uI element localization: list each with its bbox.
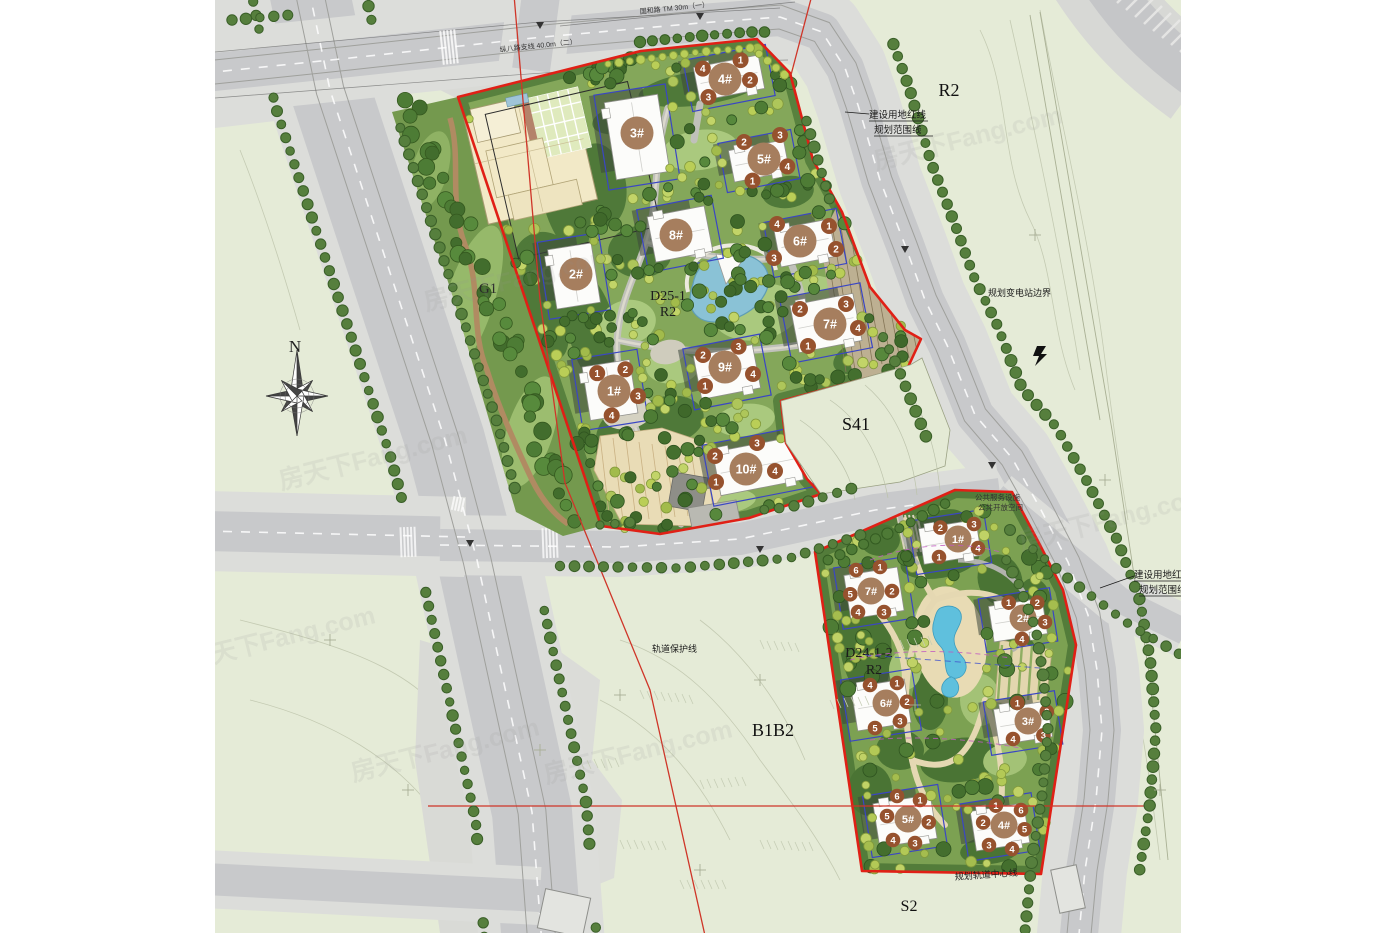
svg-text:2: 2 [904, 697, 909, 708]
svg-text:6#: 6# [880, 698, 892, 710]
svg-text:2: 2 [889, 586, 894, 597]
svg-text:规划范围线: 规划范围线 [874, 124, 922, 136]
svg-text:3: 3 [635, 392, 641, 403]
svg-text:6: 6 [853, 565, 858, 576]
svg-text:S41: S41 [842, 414, 870, 434]
svg-text:5#: 5# [902, 814, 914, 826]
svg-text:7#: 7# [865, 586, 877, 598]
svg-text:规划变电站边界: 规划变电站边界 [988, 287, 1051, 298]
svg-text:D25-1: D25-1 [650, 289, 686, 304]
svg-text:6: 6 [1018, 805, 1023, 816]
svg-text:3: 3 [971, 519, 976, 530]
svg-text:10#: 10# [736, 463, 757, 477]
svg-text:3: 3 [1042, 617, 1047, 628]
svg-text:4: 4 [855, 607, 861, 618]
svg-text:3: 3 [706, 93, 712, 104]
svg-text:4#: 4# [718, 73, 732, 87]
svg-text:规划范围线: 规划范围线 [1139, 584, 1187, 596]
svg-text:4: 4 [774, 220, 780, 231]
svg-text:2: 2 [981, 818, 986, 829]
svg-text:1: 1 [594, 369, 600, 380]
svg-text:4: 4 [750, 370, 756, 381]
svg-text:1: 1 [702, 382, 708, 393]
svg-text:5: 5 [884, 811, 890, 822]
svg-text:3: 3 [912, 838, 917, 849]
svg-text:4: 4 [609, 411, 615, 422]
svg-text:1: 1 [1015, 698, 1021, 709]
svg-text:7#: 7# [823, 318, 837, 332]
svg-text:5: 5 [872, 723, 878, 734]
svg-text:2: 2 [1035, 598, 1040, 609]
svg-text:N: N [289, 337, 301, 356]
svg-text:1: 1 [1006, 598, 1012, 609]
svg-text:3: 3 [754, 439, 760, 450]
svg-text:5: 5 [848, 590, 854, 601]
svg-text:4: 4 [785, 162, 791, 173]
svg-text:3: 3 [777, 131, 783, 142]
svg-text:8#: 8# [669, 229, 683, 243]
svg-text:1: 1 [805, 342, 811, 353]
svg-text:3: 3 [897, 716, 902, 727]
svg-text:3: 3 [771, 254, 777, 265]
svg-text:公共开放空间: 公共开放空间 [978, 502, 1023, 512]
svg-text:2: 2 [700, 351, 706, 362]
svg-text:建设用地红线: 建设用地红线 [869, 109, 927, 121]
svg-text:轨道保护线: 轨道保护线 [652, 643, 697, 654]
svg-text:2: 2 [797, 305, 803, 316]
svg-text:4#: 4# [998, 820, 1010, 832]
svg-text:2: 2 [623, 365, 629, 376]
svg-text:1#: 1# [607, 385, 621, 399]
svg-text:1: 1 [894, 678, 900, 689]
svg-text:3#: 3# [630, 127, 644, 141]
svg-text:6#: 6# [793, 235, 807, 249]
svg-text:4: 4 [1010, 734, 1016, 745]
svg-text:1: 1 [826, 222, 832, 233]
svg-text:3: 3 [881, 607, 886, 618]
svg-text:公共服务设施: 公共服务设施 [975, 492, 1020, 502]
svg-text:9#: 9# [718, 361, 732, 375]
svg-text:3: 3 [736, 342, 742, 353]
svg-text:2: 2 [938, 523, 943, 534]
svg-text:1: 1 [936, 552, 942, 563]
svg-text:4: 4 [1019, 634, 1025, 645]
svg-text:5#: 5# [757, 153, 771, 167]
svg-text:1: 1 [750, 176, 756, 187]
svg-text:2: 2 [833, 245, 839, 256]
svg-text:4: 4 [772, 467, 778, 478]
svg-text:3: 3 [843, 300, 849, 311]
svg-text:2: 2 [926, 818, 931, 829]
svg-text:2: 2 [741, 138, 747, 149]
svg-text:4: 4 [855, 324, 861, 335]
svg-text:1: 1 [738, 56, 744, 67]
svg-text:6: 6 [894, 791, 899, 802]
svg-text:4: 4 [890, 835, 896, 846]
svg-text:1: 1 [713, 478, 719, 489]
svg-text:2: 2 [712, 452, 718, 463]
svg-text:R2: R2 [938, 80, 959, 100]
svg-text:1#: 1# [952, 534, 964, 546]
svg-text:4: 4 [975, 543, 981, 554]
svg-text:B1B2: B1B2 [752, 720, 794, 740]
svg-text:S2: S2 [901, 898, 918, 915]
svg-text:R2: R2 [866, 663, 882, 678]
svg-text:4: 4 [867, 680, 873, 691]
svg-text:R2: R2 [660, 305, 676, 320]
svg-text:1: 1 [917, 795, 923, 806]
svg-text:4: 4 [1009, 844, 1015, 855]
svg-text:5: 5 [1022, 825, 1028, 836]
svg-text:1: 1 [877, 562, 883, 573]
svg-text:2: 2 [747, 76, 753, 87]
svg-text:3: 3 [986, 840, 991, 851]
svg-text:3#: 3# [1022, 716, 1034, 728]
svg-text:4: 4 [700, 64, 706, 75]
